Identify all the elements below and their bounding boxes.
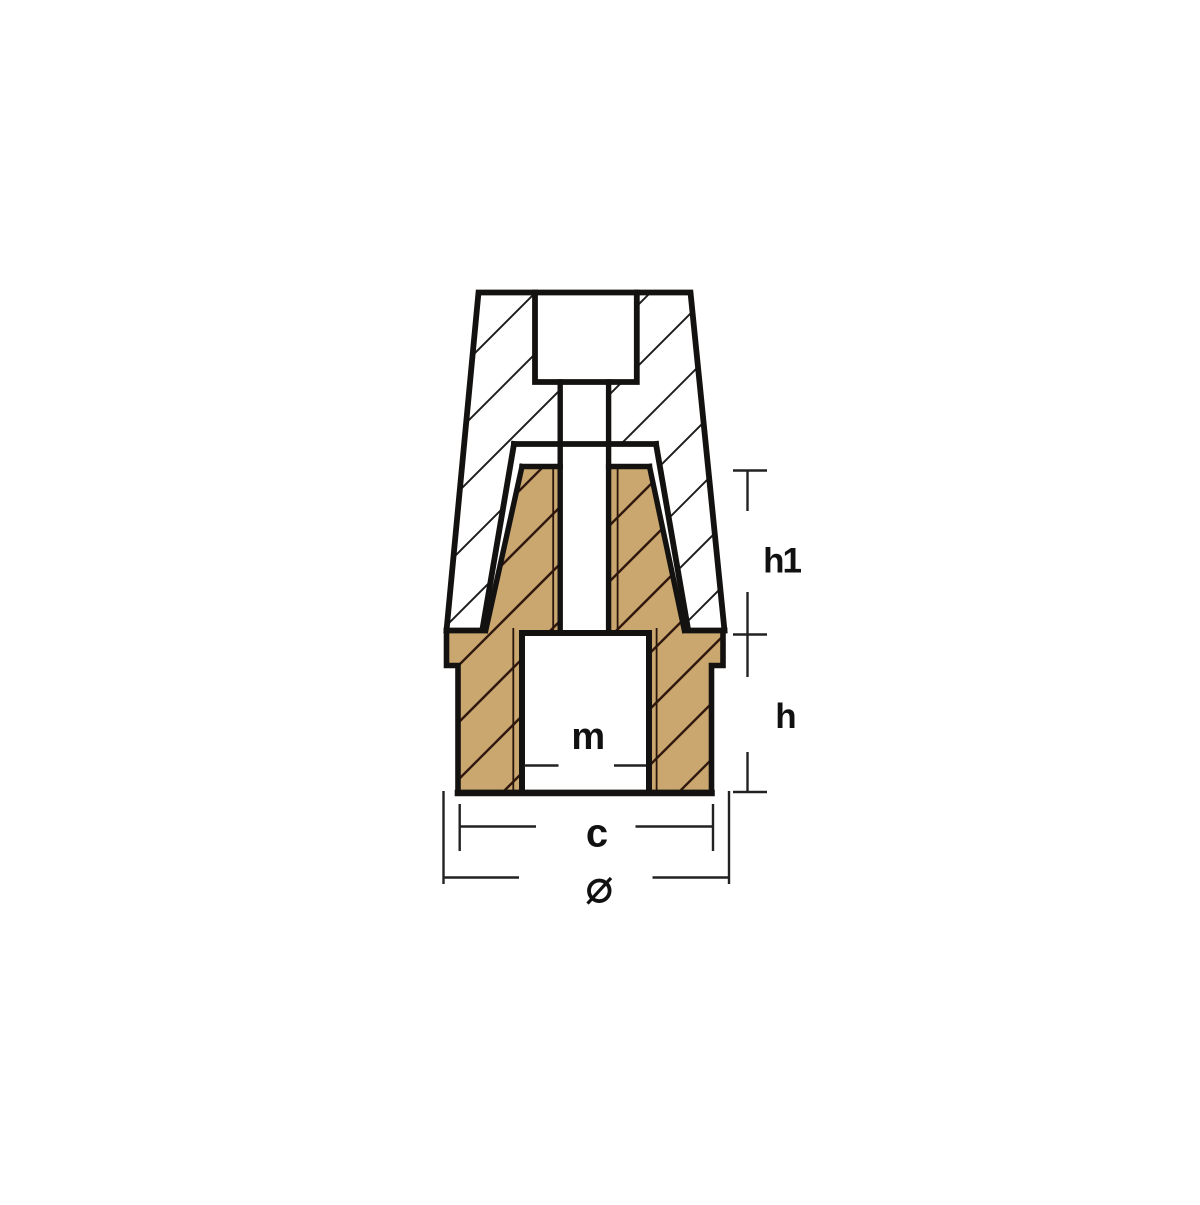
svg-text:m: m xyxy=(571,716,605,758)
svg-text:h: h xyxy=(775,697,796,736)
svg-text:h1: h1 xyxy=(763,542,801,581)
svg-text:c: c xyxy=(586,811,608,855)
